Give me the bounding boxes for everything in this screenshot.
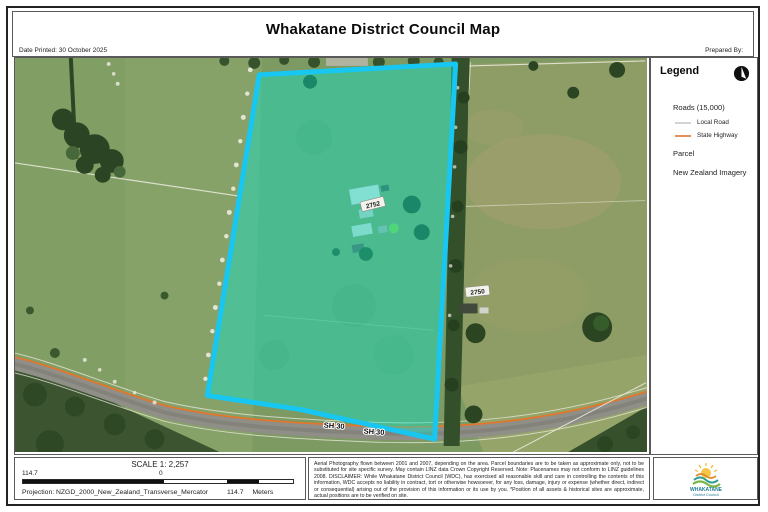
legend-imagery-label: New Zealand Imagery: [673, 168, 750, 177]
map-sheet: Whakatane District Council Map Date Prin…: [6, 6, 760, 506]
scale-text: SCALE 1: 2,257: [15, 460, 305, 469]
page-title: Whakatane District Council Map: [13, 21, 753, 38]
council-logo-icon: WHAKATANE District Council: [674, 461, 738, 497]
road-label-sh30-b: SH 30: [363, 427, 384, 437]
legend-item-label: Local Road: [697, 119, 729, 126]
svg-text:SH 30: SH 30: [363, 427, 384, 437]
parcel-label-2750: 2750: [465, 285, 490, 297]
legend-item-state-highway: State Highway: [675, 132, 750, 139]
council-logo-panel: WHAKATANE District Council: [653, 457, 758, 500]
date-printed-label: Date Printed: 30 October 2025: [19, 47, 107, 54]
disclaimer-text: Aerial Photography flown between 2001 an…: [309, 458, 649, 503]
scale-bar: [22, 479, 294, 484]
svg-text:SH 30: SH 30: [324, 421, 345, 431]
projection-label: Projection: NZGD_2000_New_Zealand_Transv…: [22, 489, 208, 496]
local-road-swatch-icon: [675, 121, 691, 125]
svg-text:District Council: District Council: [693, 493, 718, 497]
scale-panel: SCALE 1: 2,257 114.7 0 Projection: NZGD_…: [14, 457, 306, 500]
scale-units: 114.7 Meters: [227, 489, 273, 496]
legend-parcel-label: Parcel: [673, 149, 750, 158]
prepared-by-label: Prepared By:: [705, 47, 743, 54]
scale-left-value: 114.7: [22, 470, 38, 477]
legend-roads-group-label: Roads (15,000): [673, 103, 750, 112]
header: Whakatane District Council Map Date Prin…: [12, 11, 754, 57]
legend-item-label: State Highway: [697, 132, 738, 139]
legend-panel: Legend Roads (15,000) Local Road: [650, 57, 758, 455]
map-canvas: 2752 2750 SH 30 SH 30: [15, 58, 647, 452]
state-highway-swatch-icon: [675, 134, 691, 138]
scale-zero-value: 0: [159, 470, 163, 477]
scale-units-label: Meters: [253, 489, 274, 496]
road-label-sh30-a: SH 30: [324, 421, 345, 431]
north-arrow-icon: [733, 65, 750, 87]
legend-item-local-road: Local Road: [675, 119, 750, 126]
legend-title: Legend: [660, 65, 699, 77]
disclaimer-panel: Aerial Photography flown between 2001 an…: [308, 457, 650, 500]
map-viewport: 2752 2750 SH 30 SH 30: [14, 57, 650, 455]
scale-right-value: 114.7: [227, 489, 244, 496]
